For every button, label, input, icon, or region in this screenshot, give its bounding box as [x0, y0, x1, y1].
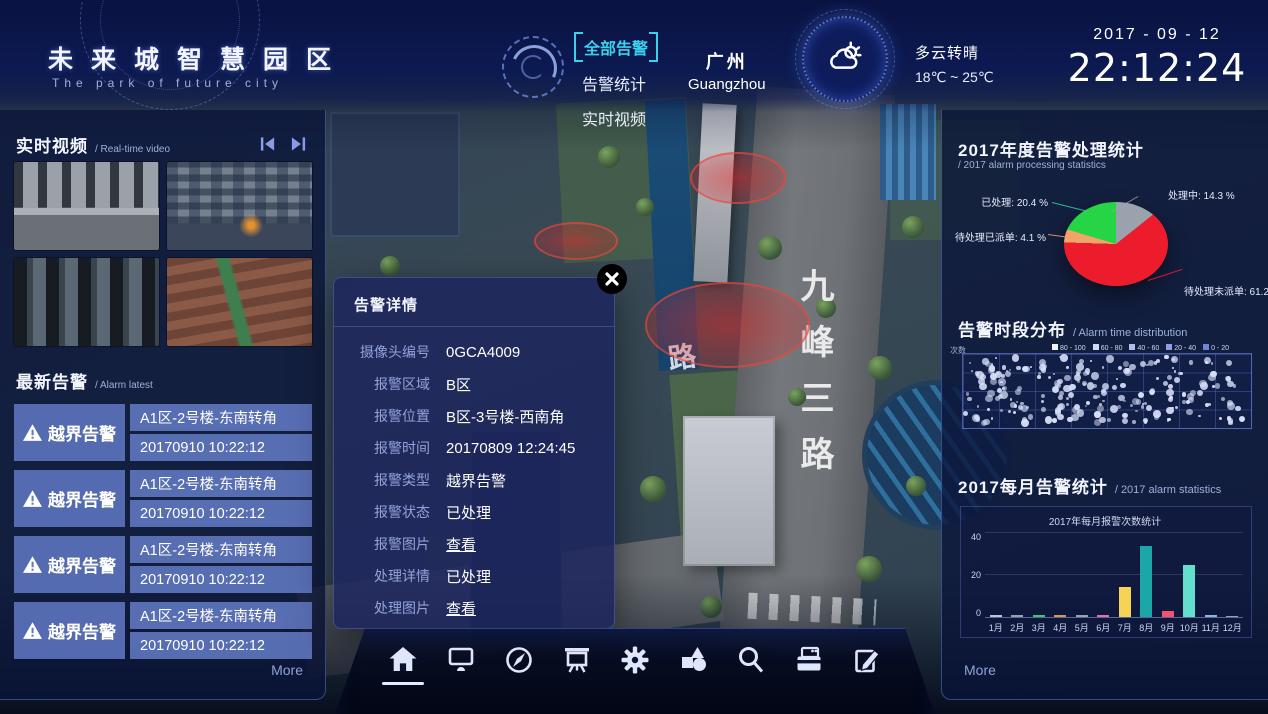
scatter-dot	[1012, 354, 1019, 361]
scatter-dot	[991, 363, 994, 366]
pie-label-processing: 处理中: 14.3 %	[1168, 187, 1235, 202]
scatter-dot	[1087, 372, 1090, 375]
alarm-type-text: 越界告警	[48, 486, 116, 511]
scatter-dot	[963, 411, 968, 416]
warning-icon	[23, 490, 42, 507]
scatter-dot	[1038, 372, 1041, 375]
warning-icon	[23, 424, 42, 441]
skip-previous-button[interactable]	[259, 136, 276, 152]
alarm-zone-marker[interactable]	[645, 282, 810, 368]
alarm-type-cell: 越界告警	[14, 536, 125, 593]
video-section-title: 实时视频	[16, 132, 88, 157]
bar-x-label: 3月	[1028, 621, 1050, 634]
weather-temp-range: 18℃ ~ 25℃	[915, 69, 994, 86]
city-selector[interactable]: 广州 Guangzhou	[688, 48, 766, 93]
alarm-list-item[interactable]: 越界告警 A1区-2号楼-东南转角20170910 10:22:12	[14, 470, 312, 527]
scatter-dot	[1122, 418, 1128, 424]
bar-chart-inner-title: 2017年每月报警次数统计	[967, 513, 1243, 528]
pie-section-header: 2017年度告警处理统计	[958, 136, 1144, 161]
scatter-section-title: 告警时段分布	[958, 316, 1066, 341]
right-panel: 2017年度告警处理统计 / 2017 alarm processing sta…	[941, 110, 1268, 700]
scatter-dot	[1041, 394, 1046, 399]
datetime-display: 2017 - 09 - 12 22:12:24	[1062, 26, 1252, 90]
time-display: 22:12:24	[1062, 46, 1252, 90]
bar	[1162, 611, 1174, 617]
scatter-dot	[988, 366, 995, 373]
scatter-dot	[1016, 366, 1021, 371]
scatter-dot	[1189, 360, 1193, 364]
scatter-dot	[1093, 384, 1097, 388]
bar	[1054, 615, 1066, 617]
map-building	[683, 416, 775, 566]
scatter-dot	[1150, 391, 1154, 395]
alarm-type-cell: 越界告警	[14, 470, 125, 527]
scatter-dot	[1168, 397, 1173, 402]
scatter-dot	[1166, 407, 1174, 415]
scatter-dot	[1188, 397, 1195, 404]
bar	[1033, 615, 1045, 617]
scatter-dot	[1211, 362, 1214, 365]
modal-divider	[334, 326, 614, 327]
scatter-dot	[1130, 404, 1133, 407]
scatter-dot	[1021, 419, 1029, 427]
map-tree	[906, 476, 926, 496]
shapes-button[interactable]	[673, 644, 713, 685]
pie-label-pending-undispatched: 待处理未派单: 61.2 %	[1184, 283, 1268, 298]
scatter-dot	[1068, 392, 1074, 398]
scatter-dot	[1186, 409, 1193, 416]
bar-y-tick: 0	[976, 608, 981, 618]
alarm-zone-marker[interactable]	[690, 152, 786, 204]
scatter-dot	[1053, 373, 1056, 376]
scatter-dot	[1098, 395, 1100, 397]
scatter-dot	[1167, 418, 1171, 422]
alarm-time: 20170910 10:22:12	[130, 500, 312, 527]
bar-y-tick: 40	[971, 532, 981, 542]
scatter-dot	[1016, 401, 1018, 403]
scatter-dot	[1138, 392, 1144, 398]
scatter-dot	[1198, 415, 1200, 417]
bar	[990, 615, 1002, 617]
scatter-dot	[1059, 356, 1061, 358]
search-icon	[735, 644, 767, 676]
bar-x-label: 7月	[1114, 621, 1136, 634]
card-reader-button[interactable]	[789, 644, 829, 685]
field-alarm-time: 报警时间20170809 12:24:45	[334, 432, 614, 464]
field-label: 报警位置	[334, 406, 430, 426]
scatter-dot	[1132, 398, 1139, 405]
settings-button[interactable]	[615, 644, 655, 685]
bar-section-header: 2017每月告警统计 / 2017 alarm statistics	[958, 473, 1221, 498]
scatter-dot	[1099, 417, 1105, 423]
scatter-dot	[969, 362, 971, 364]
scatter-dot	[1106, 355, 1113, 362]
scatter-dot	[1174, 377, 1180, 383]
field-alarm-position: 报警位置B区-3号楼-西南角	[334, 400, 614, 432]
bar	[1205, 615, 1217, 617]
field-alarm-status: 报警状态已处理	[334, 496, 614, 528]
video-thumbnail[interactable]	[167, 258, 312, 346]
alarm-type-text: 越界告警	[48, 420, 116, 445]
alarm-location: A1区-2号楼-东南转角	[130, 470, 312, 497]
view-handle-image-link[interactable]: 查看	[446, 601, 476, 618]
map-tree	[868, 356, 892, 380]
scatter-dot	[1107, 418, 1112, 423]
video-thumbnail[interactable]	[167, 162, 312, 250]
scatter-dot	[1030, 366, 1032, 368]
projection-screen-icon	[561, 644, 593, 676]
scatter-legend-item: 80 - 100	[1052, 344, 1086, 352]
scatter-dot	[1001, 374, 1005, 378]
scatter-dot	[1174, 370, 1176, 372]
video-thumbnail[interactable]	[14, 258, 159, 346]
bottom-toolbar	[335, 628, 935, 714]
bar-y-axis: 40200	[967, 532, 985, 618]
home-button[interactable]	[383, 644, 423, 685]
radar-icon	[502, 36, 564, 98]
scatter-dot	[1141, 405, 1144, 408]
map-tree	[380, 256, 400, 276]
scatter-dot	[1090, 360, 1092, 362]
video-thumbnail[interactable]	[14, 162, 159, 250]
field-value: 越界告警	[446, 470, 506, 491]
scatter-dot	[1009, 369, 1011, 371]
scatter-dot	[991, 417, 993, 419]
left-panel: 实时视频 / Real-time video 最新告警 / Alarm late…	[0, 110, 326, 700]
app-subtitle: The park of future city	[52, 76, 283, 90]
pie-label-pending-dispatched: 待处理已派单: 4.1 %	[950, 229, 1046, 244]
dashboard: 九峰三路 路 未来城智慧园区 The park of future city 全…	[0, 0, 1268, 714]
scatter-dot	[1228, 418, 1233, 423]
scatter-dot	[1167, 375, 1172, 380]
scatter-dot	[1129, 364, 1135, 370]
scatter-dot	[1028, 414, 1034, 420]
alarm-location: A1区-2号楼-东南转角	[130, 536, 312, 563]
scatter-dot	[1172, 358, 1175, 361]
scatter-dot	[1102, 400, 1104, 402]
scatter-dot	[1227, 402, 1235, 410]
edit-icon	[851, 644, 883, 676]
scatter-dot	[1077, 409, 1085, 417]
scatter-dot	[966, 392, 970, 396]
scatter-dot	[1079, 359, 1085, 365]
alarm-list-item[interactable]: 越界告警 A1区-2号楼-东南转角20170910 10:22:12	[14, 536, 312, 593]
scatter-dot	[1148, 360, 1154, 366]
scatter-dot	[1066, 366, 1069, 369]
scatter-section-subtitle: / Alarm time distribution	[1073, 327, 1187, 339]
view-alarm-image-link[interactable]: 查看	[446, 537, 476, 554]
scatter-dot	[1064, 375, 1070, 381]
field-label: 报警类型	[334, 470, 430, 490]
scatter-dot	[1057, 414, 1063, 420]
shapes-icon	[677, 644, 709, 676]
gear-icon	[619, 644, 651, 676]
home-icon	[387, 644, 419, 676]
bar-section-title: 2017每月告警统计	[958, 473, 1108, 498]
scatter-dot	[987, 408, 990, 411]
field-alarm-area: 报警区域B区	[334, 368, 614, 400]
bar-section-subtitle: / 2017 alarm statistics	[1115, 484, 1221, 496]
scatter-legend-item: 60 - 80	[1093, 344, 1123, 352]
scatter-dot	[1048, 376, 1051, 379]
alarm-section-header: 最新告警 / Alarm latest	[16, 368, 153, 393]
bar	[1140, 546, 1152, 617]
scatter-dot	[1014, 404, 1017, 407]
scatter-dot	[1054, 380, 1061, 387]
scatter-dot	[1239, 416, 1245, 422]
field-label: 处理详情	[334, 566, 430, 586]
alarm-location: A1区-2号楼-东南转角	[130, 404, 312, 431]
scatter-legend-item: 40 - 60	[1129, 344, 1159, 352]
alarm-list-item[interactable]: 越界告警 A1区-2号楼-东南转角20170910 10:22:12	[14, 404, 312, 461]
field-value: 已处理	[446, 566, 491, 587]
date-display: 2017 - 09 - 12	[1062, 26, 1252, 44]
scatter-dot	[978, 378, 985, 385]
alarm-location: A1区-2号楼-东南转角	[130, 602, 312, 629]
scatter-dot	[1123, 361, 1129, 367]
card-reader-icon	[793, 644, 825, 676]
scatter-dot	[1135, 410, 1138, 413]
scatter-dot	[1021, 405, 1027, 411]
field-label: 处理图片	[334, 598, 430, 618]
skip-next-button[interactable]	[290, 136, 307, 152]
scatter-dot	[1153, 410, 1161, 418]
bar	[1183, 565, 1195, 617]
scatter-dot	[1069, 388, 1072, 391]
alarm-type-cell: 越界告警	[14, 404, 125, 461]
header-bar: 未来城智慧园区 The park of future city 全部告警 告警统…	[0, 0, 1268, 112]
alarm-detail-modal: 告警详情 摄像头编号0GCA4009 报警区域B区 报警位置B区-3号楼-西南角…	[333, 277, 615, 629]
field-label: 报警图片	[334, 534, 430, 554]
warning-icon	[23, 622, 42, 639]
scatter-dot	[967, 397, 972, 402]
compass-icon	[503, 644, 535, 676]
monitor-icon	[445, 644, 477, 676]
field-value: 已处理	[446, 502, 491, 523]
scatter-dot	[1017, 386, 1022, 391]
scatter-dot	[1140, 361, 1146, 367]
scatter-dot	[1060, 354, 1067, 361]
scatter-dot	[971, 370, 974, 373]
scatter-dot	[1190, 390, 1196, 396]
city-name-en: Guangzhou	[688, 76, 766, 93]
left-more-link[interactable]: More	[271, 662, 303, 678]
field-value: 0GCA4009	[446, 344, 520, 361]
weather-badge	[802, 16, 888, 102]
close-icon	[605, 272, 619, 286]
video-section-header: 实时视频 / Real-time video	[16, 132, 170, 157]
scatter-dot	[1052, 386, 1059, 393]
alarm-zone-marker[interactable]	[534, 222, 618, 260]
scatter-dot	[1005, 371, 1011, 377]
bar-plot-area	[985, 532, 1243, 618]
field-label: 报警区域	[334, 374, 430, 394]
alarm-time: 20170910 10:22:12	[130, 632, 312, 659]
scatter-dot	[1091, 372, 1099, 380]
field-label: 摄像头编号	[334, 342, 430, 362]
alarm-list-item[interactable]: 越界告警 A1区-2号楼-东南转角20170910 10:22:12	[14, 602, 312, 659]
scatter-dot	[1112, 385, 1117, 390]
scatter-dot	[1205, 403, 1209, 407]
bar-x-label: 8月	[1136, 621, 1158, 634]
scatter-dot	[1197, 390, 1203, 396]
scatter-dot	[1199, 380, 1207, 388]
scatter-dot	[1041, 407, 1046, 412]
scatter-dot	[1123, 400, 1125, 402]
bar	[1119, 587, 1131, 617]
scatter-dot	[1000, 409, 1004, 413]
scatter-dot	[1175, 406, 1178, 409]
scatter-dot	[977, 405, 980, 408]
field-value: B区-3号楼-西南角	[446, 406, 564, 427]
pie-section-subtitle: / 2017 alarm processing statistics	[958, 160, 1106, 171]
bar-x-label: 4月	[1050, 621, 1072, 634]
cloud-sun-icon	[822, 36, 868, 82]
field-label: 报警状态	[334, 502, 430, 522]
app-title: 未来城智慧园区	[48, 40, 349, 76]
field-label: 报警时间	[334, 438, 430, 458]
alarm-time: 20170910 10:22:12	[130, 434, 312, 461]
bar	[1097, 615, 1109, 617]
scatter-dot	[1093, 395, 1097, 399]
scatter-dot	[1102, 366, 1104, 368]
scatter-dot	[1144, 402, 1147, 405]
bar-x-label: 11月	[1200, 621, 1222, 634]
scatter-dot	[1143, 418, 1149, 424]
scatter-dot	[1052, 418, 1057, 423]
scatter-dot	[983, 419, 990, 426]
bar-chart: 2017年每月报警次数统计 40200 1月2月3月4月5月6月7月8月9月10…	[960, 506, 1252, 638]
scatter-dot	[1085, 405, 1087, 407]
scatter-dot	[1172, 367, 1174, 369]
bar-x-label: 5月	[1071, 621, 1093, 634]
main-nav: 全部告警 告警统计 实时视频	[574, 32, 658, 132]
scatter-dot	[1117, 405, 1121, 409]
scatter-dot	[1058, 395, 1063, 400]
scatter-dot	[1146, 405, 1152, 411]
scatter-dot	[1101, 390, 1108, 397]
map-tree	[636, 198, 654, 216]
scatter-dot	[1067, 417, 1073, 423]
field-alarm-type: 报警类型越界告警	[334, 464, 614, 496]
scatter-legend: 80 - 10060 - 8040 - 6020 - 400 - 20	[1052, 344, 1229, 352]
scatter-dot	[1118, 366, 1122, 370]
alarm-time: 20170910 10:22:12	[130, 566, 312, 593]
active-tab-underline	[382, 682, 424, 685]
scatter-dot	[1066, 403, 1069, 406]
scatter-section-header: 告警时段分布 / Alarm time distribution	[958, 316, 1187, 341]
alarm-list: 越界告警 A1区-2号楼-东南转角20170910 10:22:12 越界告警 …	[14, 404, 312, 659]
field-camera-id: 摄像头编号0GCA4009	[334, 336, 614, 368]
city-name-zh: 广州	[688, 48, 766, 74]
scatter-dot	[1086, 401, 1090, 405]
scatter-dot	[1180, 372, 1182, 374]
weather-text: 多云转晴 18℃ ~ 25℃	[915, 42, 994, 86]
bar-x-label: 2月	[1007, 621, 1029, 634]
bar	[1226, 616, 1238, 618]
scatter-dot	[1221, 397, 1225, 401]
nav-item-realtime-video[interactable]: 实时视频	[574, 104, 658, 132]
scatter-dot	[987, 390, 995, 398]
alarm-section-title: 最新告警	[16, 368, 88, 393]
weather-condition: 多云转晴	[915, 42, 994, 63]
video-carousel-controls	[259, 136, 307, 152]
nav-item-alarm-stats[interactable]: 告警统计	[574, 69, 658, 97]
bar-x-label: 12月	[1222, 621, 1244, 634]
edit-button[interactable]	[847, 644, 887, 685]
pie-section-title: 2017年度告警处理统计	[958, 136, 1144, 161]
scatter-dot	[1226, 360, 1232, 366]
scatter-dot	[1058, 403, 1065, 410]
field-value: B区	[446, 374, 471, 395]
video-grid	[14, 162, 312, 346]
field-value: 20170809 12:24:45	[446, 440, 575, 457]
map-tree	[902, 216, 924, 238]
scatter-dot	[1208, 374, 1216, 382]
projection-screen-button[interactable]	[557, 644, 597, 685]
scatter-dot	[1010, 398, 1013, 401]
field-handle-detail: 处理详情已处理	[334, 560, 614, 592]
warning-icon	[23, 556, 42, 573]
scatter-dot	[1233, 384, 1237, 388]
bar-x-label: 1月	[985, 621, 1007, 634]
scatter-dot	[1156, 359, 1160, 363]
scatter-dot	[1074, 374, 1081, 381]
bar-y-tick: 20	[971, 570, 981, 580]
alarm-type-text: 越界告警	[48, 552, 116, 577]
scatter-dot	[1166, 389, 1174, 397]
scatter-dot	[1235, 406, 1241, 412]
scatter-dot	[1156, 377, 1159, 380]
scatter-dot	[1002, 365, 1007, 370]
scatter-dot	[1037, 375, 1041, 379]
bar	[1011, 615, 1023, 617]
bar-x-label: 10月	[1179, 621, 1201, 634]
compass-button[interactable]	[499, 644, 539, 685]
scatter-legend-item: 0 - 20	[1203, 344, 1229, 352]
scatter-legend-item: 20 - 40	[1166, 344, 1196, 352]
nav-item-all-alarms[interactable]: 全部告警	[574, 32, 658, 62]
bar-x-axis: 1月2月3月4月5月6月7月8月9月10月11月12月	[985, 621, 1243, 634]
map-tree	[640, 476, 666, 502]
scatter-dot	[1045, 416, 1053, 424]
pie-label-processed: 已处理: 20.4 %	[956, 194, 1048, 209]
modal-body: 摄像头编号0GCA4009 报警区域B区 报警位置B区-3号楼-西南角 报警时间…	[334, 336, 614, 624]
field-alarm-image: 报警图片查看	[334, 528, 614, 560]
alarm-section-subtitle: / Alarm latest	[95, 380, 153, 391]
monitor-button[interactable]	[441, 644, 481, 685]
scatter-dot	[1132, 420, 1135, 423]
scatter-dot	[1008, 410, 1011, 413]
scatter-dot	[1204, 357, 1211, 364]
bar-x-label: 6月	[1093, 621, 1115, 634]
bar	[1076, 615, 1088, 617]
search-button[interactable]	[731, 644, 771, 685]
modal-title: 告警详情	[354, 294, 418, 315]
scatter-dot	[1013, 411, 1016, 414]
scatter-dot	[1164, 355, 1169, 360]
scatter-dot	[995, 357, 997, 359]
alarm-type-text: 越界告警	[48, 618, 116, 643]
alarm-type-cell: 越界告警	[14, 602, 125, 659]
scatter-dot	[1215, 383, 1221, 389]
scatter-dot	[1116, 378, 1118, 380]
map-tree	[758, 236, 782, 260]
modal-close-button[interactable]	[597, 264, 627, 294]
scatter-dot	[1022, 366, 1028, 372]
scatter-plot	[962, 353, 1252, 429]
right-more-link[interactable]: More	[964, 662, 996, 678]
